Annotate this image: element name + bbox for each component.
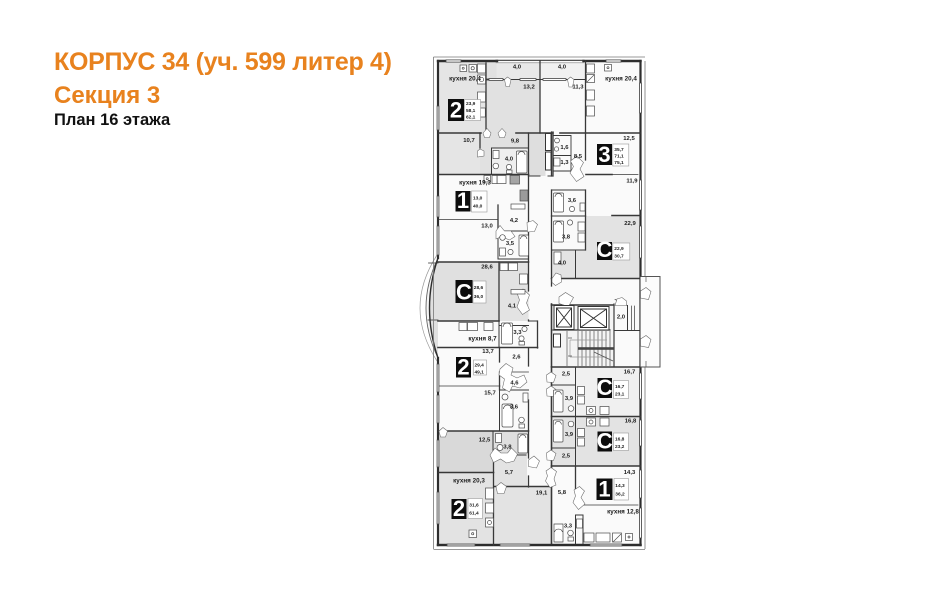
svg-text:19,1: 19,1 — [536, 491, 548, 497]
svg-text:14,3: 14,3 — [615, 483, 625, 489]
svg-text:13,0: 13,0 — [473, 196, 483, 202]
svg-text:3,9: 3,9 — [565, 396, 574, 402]
svg-text:4,0: 4,0 — [558, 65, 567, 71]
svg-text:1: 1 — [598, 477, 610, 502]
svg-text:2,5: 2,5 — [562, 454, 571, 460]
svg-text:23,1: 23,1 — [615, 392, 625, 398]
svg-text:16,8: 16,8 — [615, 437, 625, 443]
svg-text:C: C — [597, 375, 613, 400]
svg-text:5,7: 5,7 — [505, 470, 514, 476]
svg-text:2,6: 2,6 — [512, 355, 521, 361]
svg-text:40,0: 40,0 — [473, 204, 483, 210]
svg-text:15,7: 15,7 — [484, 391, 496, 397]
svg-text:кухня 19,3: кухня 19,3 — [459, 180, 491, 187]
svg-text:28,6: 28,6 — [481, 265, 493, 271]
svg-text:71,1: 71,1 — [614, 154, 624, 160]
svg-text:11,9: 11,9 — [626, 179, 638, 185]
svg-text:1,3: 1,3 — [560, 160, 569, 166]
svg-text:10,7: 10,7 — [463, 138, 475, 144]
svg-text:4,0: 4,0 — [513, 65, 522, 71]
svg-text:22,9: 22,9 — [624, 221, 636, 227]
svg-text:3,5: 3,5 — [506, 241, 515, 247]
svg-text:2,5: 2,5 — [562, 372, 571, 378]
svg-text:C: C — [456, 280, 472, 305]
svg-text:23,9: 23,9 — [466, 101, 476, 107]
svg-text:12,5: 12,5 — [479, 438, 491, 444]
svg-text:3,6: 3,6 — [510, 405, 519, 411]
svg-text:62,1: 62,1 — [466, 115, 476, 121]
svg-text:13,0: 13,0 — [481, 224, 493, 230]
svg-text:2: 2 — [450, 98, 462, 123]
svg-text:23,2: 23,2 — [615, 444, 625, 450]
svg-text:кухня 20,3: кухня 20,3 — [453, 478, 485, 485]
svg-text:4,6: 4,6 — [510, 381, 519, 387]
svg-text:31,6: 31,6 — [469, 503, 479, 509]
svg-text:1: 1 — [457, 188, 469, 213]
svg-text:30,7: 30,7 — [614, 254, 624, 260]
svg-text:5,8: 5,8 — [558, 490, 567, 496]
svg-text:12,5: 12,5 — [623, 136, 635, 142]
svg-text:3,3: 3,3 — [564, 524, 573, 530]
svg-text:4,1: 4,1 — [508, 304, 517, 310]
svg-text:9,8: 9,8 — [511, 139, 520, 145]
svg-text:75,1: 75,1 — [614, 160, 624, 166]
svg-text:кухня 12,8: кухня 12,8 — [607, 509, 639, 516]
svg-text:кухня 8,7: кухня 8,7 — [468, 336, 497, 343]
svg-text:4,2: 4,2 — [510, 218, 519, 224]
svg-text:2: 2 — [453, 496, 465, 521]
svg-text:36,2: 36,2 — [615, 492, 625, 498]
svg-text:14,3: 14,3 — [624, 470, 636, 476]
svg-text:61,4: 61,4 — [469, 511, 479, 517]
svg-text:22,9: 22,9 — [614, 246, 624, 252]
svg-text:8,5: 8,5 — [574, 154, 583, 160]
svg-text:36,0: 36,0 — [474, 294, 484, 300]
svg-text:16,7: 16,7 — [615, 384, 625, 390]
svg-text:C: C — [597, 429, 613, 454]
svg-text:16,8: 16,8 — [625, 419, 637, 425]
svg-text:кухня 20,4: кухня 20,4 — [449, 76, 481, 83]
svg-text:49,1: 49,1 — [475, 370, 485, 376]
svg-text:28,6: 28,6 — [474, 285, 484, 291]
svg-text:1,6: 1,6 — [560, 145, 569, 151]
svg-text:13,2: 13,2 — [523, 85, 535, 91]
svg-text:4,0: 4,0 — [505, 157, 514, 163]
svg-text:кухня 20,4: кухня 20,4 — [605, 76, 637, 83]
svg-text:3,9: 3,9 — [565, 432, 574, 438]
svg-text:3,8: 3,8 — [562, 235, 571, 241]
svg-text:16,7: 16,7 — [624, 370, 636, 376]
svg-text:35,7: 35,7 — [614, 147, 624, 153]
svg-text:2,0: 2,0 — [617, 315, 626, 321]
svg-text:3,6: 3,6 — [568, 198, 577, 204]
svg-text:3: 3 — [598, 142, 610, 167]
svg-text:58,1: 58,1 — [466, 108, 476, 114]
svg-text:4,0: 4,0 — [558, 261, 567, 267]
svg-text:3,3: 3,3 — [513, 330, 522, 336]
svg-text:2: 2 — [457, 355, 469, 380]
svg-text:C: C — [597, 237, 613, 262]
svg-text:13,7: 13,7 — [482, 349, 494, 355]
svg-text:3,8: 3,8 — [503, 445, 512, 451]
svg-text:29,4: 29,4 — [475, 363, 485, 369]
svg-text:11,3: 11,3 — [572, 85, 584, 91]
